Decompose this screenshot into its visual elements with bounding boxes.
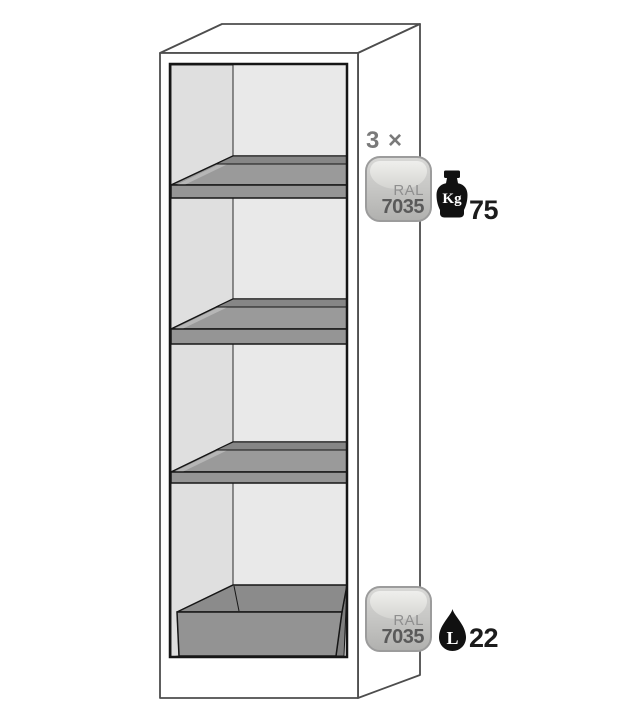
liter-unit-label: L bbox=[446, 628, 458, 648]
ral-color-badge-shelves: RAL 7035 bbox=[365, 156, 432, 222]
ral-color-badge-sump: RAL 7035 bbox=[365, 586, 432, 652]
sump-volume-value: 22 bbox=[469, 623, 498, 654]
shelf-count-label: 3 × bbox=[366, 127, 410, 155]
kg-unit-label: Kg bbox=[442, 191, 462, 207]
ral-code: 7035 bbox=[382, 628, 425, 647]
cabinet-line-art bbox=[0, 0, 629, 718]
liquid-drop-icon: L bbox=[439, 608, 466, 652]
product-diagram: 3 × RAL 7035 Kg 75 RAL 7035 L 22 bbox=[0, 0, 629, 718]
shelf-load-capacity-value: 75 bbox=[469, 195, 498, 226]
weight-kg-icon: Kg bbox=[435, 170, 469, 220]
ral-code: 7035 bbox=[382, 198, 425, 217]
